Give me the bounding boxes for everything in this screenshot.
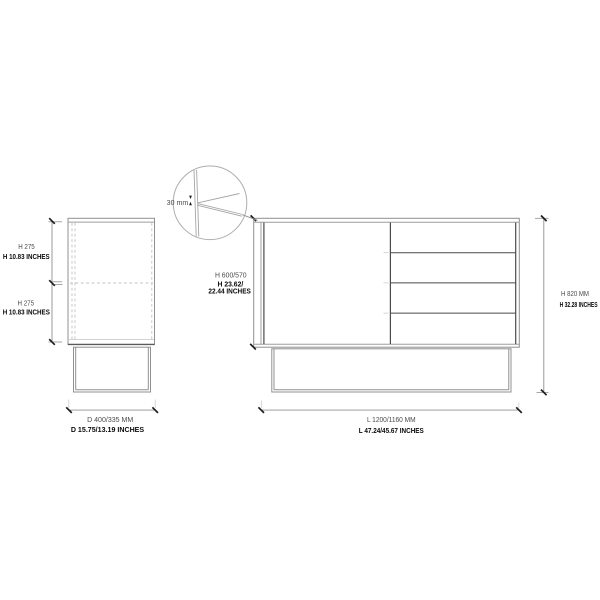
svg-text:D 400/335 MM: D 400/335 MM: [87, 417, 133, 424]
svg-text:L 47.24/45.67 INCHES: L 47.24/45.67 INCHES: [359, 428, 424, 435]
svg-text:30 mm: 30 mm: [167, 200, 189, 207]
svg-text:H 275: H 275: [18, 301, 35, 308]
svg-text:H 32.28 INCHES: H 32.28 INCHES: [560, 302, 598, 309]
svg-text:H 10.83 INCHES: H 10.83 INCHES: [3, 254, 50, 261]
svg-text:L 1200/1160 MM: L 1200/1160 MM: [367, 417, 416, 424]
svg-text:H 10.83 INCHES: H 10.83 INCHES: [3, 310, 50, 317]
svg-text:H 275: H 275: [18, 244, 35, 251]
svg-text:D 15.75/13.19 INCHES: D 15.75/13.19 INCHES: [71, 427, 145, 434]
svg-text:H 820 MM: H 820 MM: [561, 291, 589, 298]
svg-text:22.44 INCHES: 22.44 INCHES: [208, 289, 251, 296]
svg-text:H 600/570: H 600/570: [215, 273, 247, 280]
